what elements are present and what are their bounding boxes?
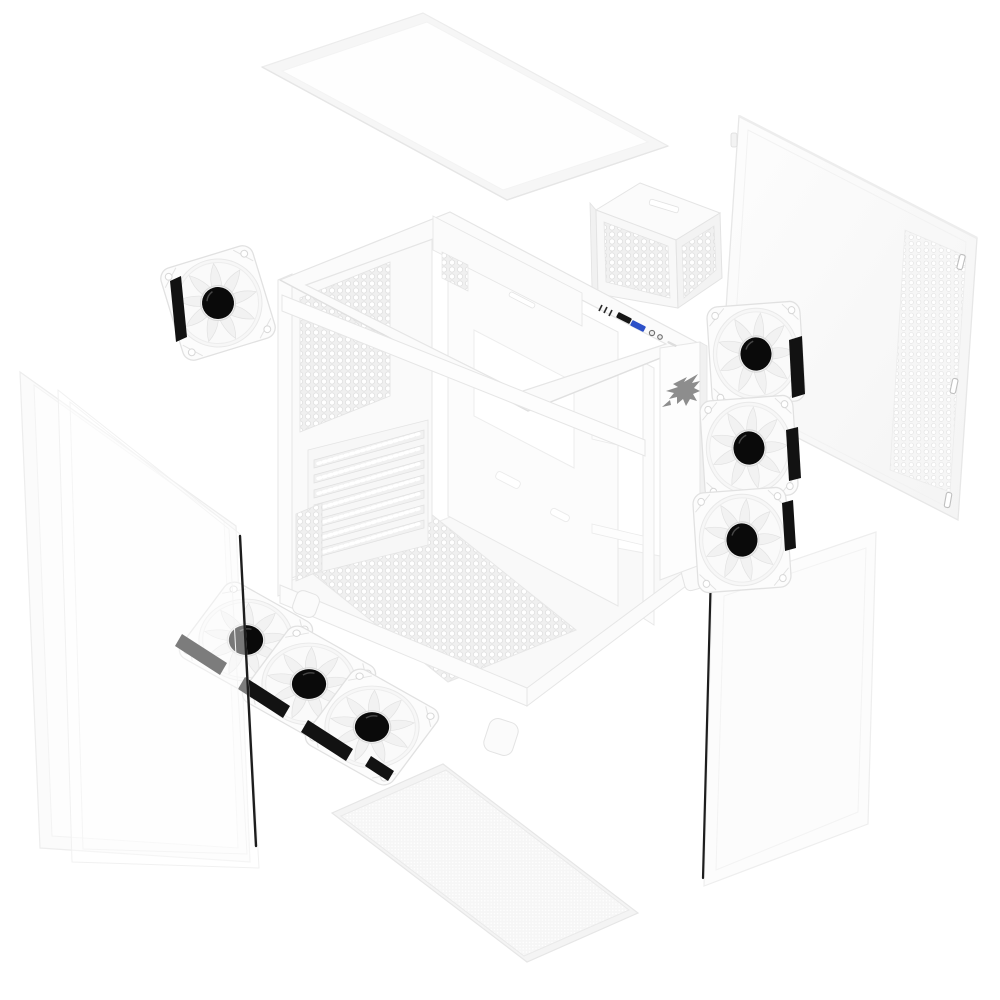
argb-fan — [692, 487, 791, 594]
side-fan-column — [692, 301, 805, 594]
psu-cage — [590, 183, 722, 308]
top-glass-panel — [262, 13, 668, 200]
product-render-stage — [0, 0, 1000, 1000]
audio-jack-icon — [649, 330, 654, 335]
case-foot — [481, 716, 520, 758]
rear-vent-bottom — [296, 503, 322, 581]
front-inner-rail — [643, 362, 654, 625]
audio-jack-icon — [658, 335, 663, 340]
rear-fan — [158, 243, 278, 363]
exploded-case-illustration — [0, 0, 1000, 1000]
side-panel-tab — [731, 133, 737, 147]
rear-pillar — [278, 274, 292, 596]
argb-fan — [699, 395, 798, 502]
dust-filter — [332, 764, 638, 962]
left-glass-panel-front — [58, 390, 259, 868]
